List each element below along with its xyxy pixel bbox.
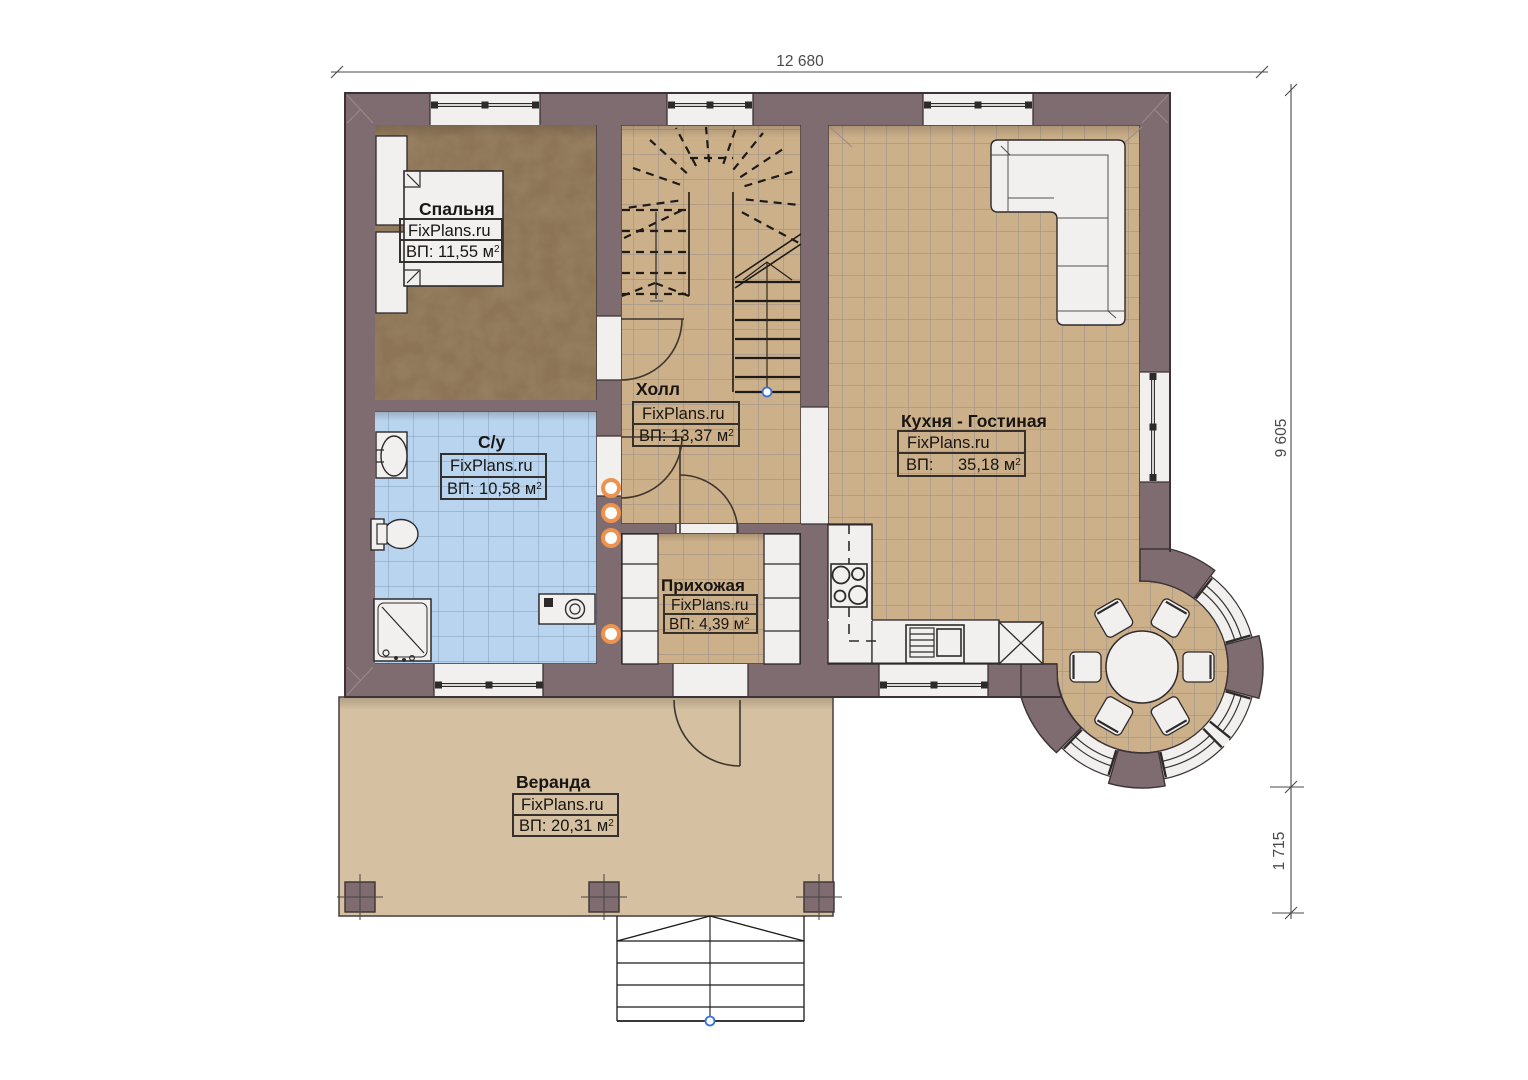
svg-text:ВП: 13,37 м2: ВП: 13,37 м2 (639, 427, 734, 445)
svg-text:1 715: 1 715 (1271, 832, 1288, 871)
svg-text:ВП: 11,55 м2: ВП: 11,55 м2 (406, 243, 500, 261)
svg-text:С/у: С/у (478, 432, 506, 452)
svg-text:Холл: Холл (636, 379, 680, 399)
svg-text:9 605: 9 605 (1273, 419, 1290, 458)
svg-text:FixPlans.ru: FixPlans.ru (408, 222, 491, 240)
svg-text:Кухня - Гостиная: Кухня - Гостиная (901, 411, 1047, 431)
svg-text:ВП: 20,31 м2: ВП: 20,31 м2 (519, 817, 614, 835)
svg-text:FixPlans.ru: FixPlans.ru (907, 434, 990, 452)
svg-text:FixPlans.ru: FixPlans.ru (642, 405, 725, 423)
svg-text:FixPlans.ru: FixPlans.ru (521, 796, 604, 814)
svg-text:Веранда: Веранда (516, 772, 590, 792)
svg-text:FixPlans.ru: FixPlans.ru (450, 457, 533, 475)
svg-text:12 680: 12 680 (776, 53, 824, 70)
svg-text:Спальня: Спальня (419, 199, 495, 219)
svg-text:35,18 м2: 35,18 м2 (958, 456, 1021, 474)
svg-text:ВП:: ВП: (906, 456, 933, 474)
svg-text:ВП: 4,39 м2: ВП: 4,39 м2 (669, 616, 750, 633)
svg-text:Прихожая: Прихожая (661, 576, 745, 595)
svg-text:FixPlans.ru: FixPlans.ru (671, 597, 749, 614)
svg-text:ВП: 10,58 м2: ВП: 10,58 м2 (447, 480, 542, 498)
